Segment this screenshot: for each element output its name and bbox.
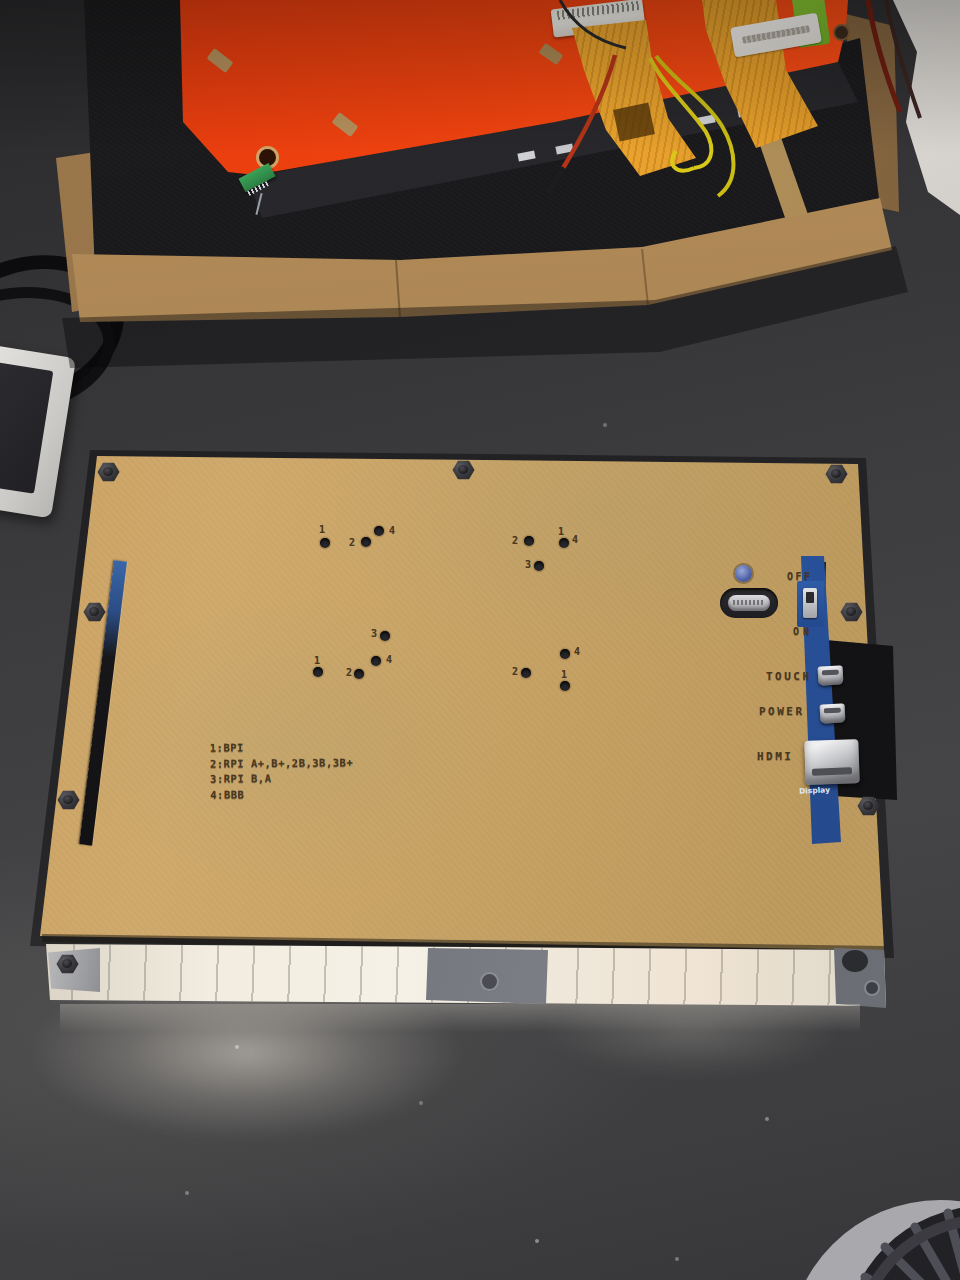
hole-number-label: 1 — [558, 526, 564, 537]
hole-number-label: 2 — [349, 537, 355, 548]
hole-number-label: 2 — [512, 666, 518, 677]
hole-number-label: 1 — [314, 655, 320, 666]
hole-number-label: 4 — [574, 646, 580, 657]
hole-number-label: 4 — [389, 525, 395, 536]
hole-number-label: 3 — [371, 628, 377, 639]
hole-number-label: 1 — [561, 669, 567, 680]
mount-hole — [380, 631, 390, 641]
screen-strip-right-blob — [842, 950, 868, 972]
hole-number-label: 4 — [386, 654, 392, 665]
screen-strip-mid-screw — [480, 972, 499, 991]
mount-hole — [313, 667, 323, 677]
mount-hole — [361, 537, 371, 547]
hole-number-label: 4 — [572, 534, 578, 545]
hole-number-label: 2 — [512, 535, 518, 546]
mount-hole — [374, 526, 384, 536]
screen-strip-reflection — [60, 1004, 860, 1032]
hole-number-label: 1 — [319, 524, 325, 535]
hole-number-label: 3 — [525, 559, 531, 570]
mount-hole — [354, 669, 364, 679]
dust-specks — [0, 0, 2, 2]
mount-hole — [534, 561, 544, 571]
hole-marker-layer: 12421433412421 — [0, 0, 960, 1280]
mount-hole — [559, 538, 569, 548]
mount-hole — [521, 668, 531, 678]
mount-hole — [371, 656, 381, 666]
hole-number-label: 2 — [346, 667, 352, 678]
mount-hole — [560, 649, 570, 659]
workbench-photo: OFF ON TOUCH POWER HDMI Display 1:BPI 2:… — [0, 0, 960, 1280]
mount-hole — [524, 536, 534, 546]
mount-hole — [320, 538, 330, 548]
mount-hole — [560, 681, 570, 691]
screen-strip-right-screw — [864, 980, 880, 996]
